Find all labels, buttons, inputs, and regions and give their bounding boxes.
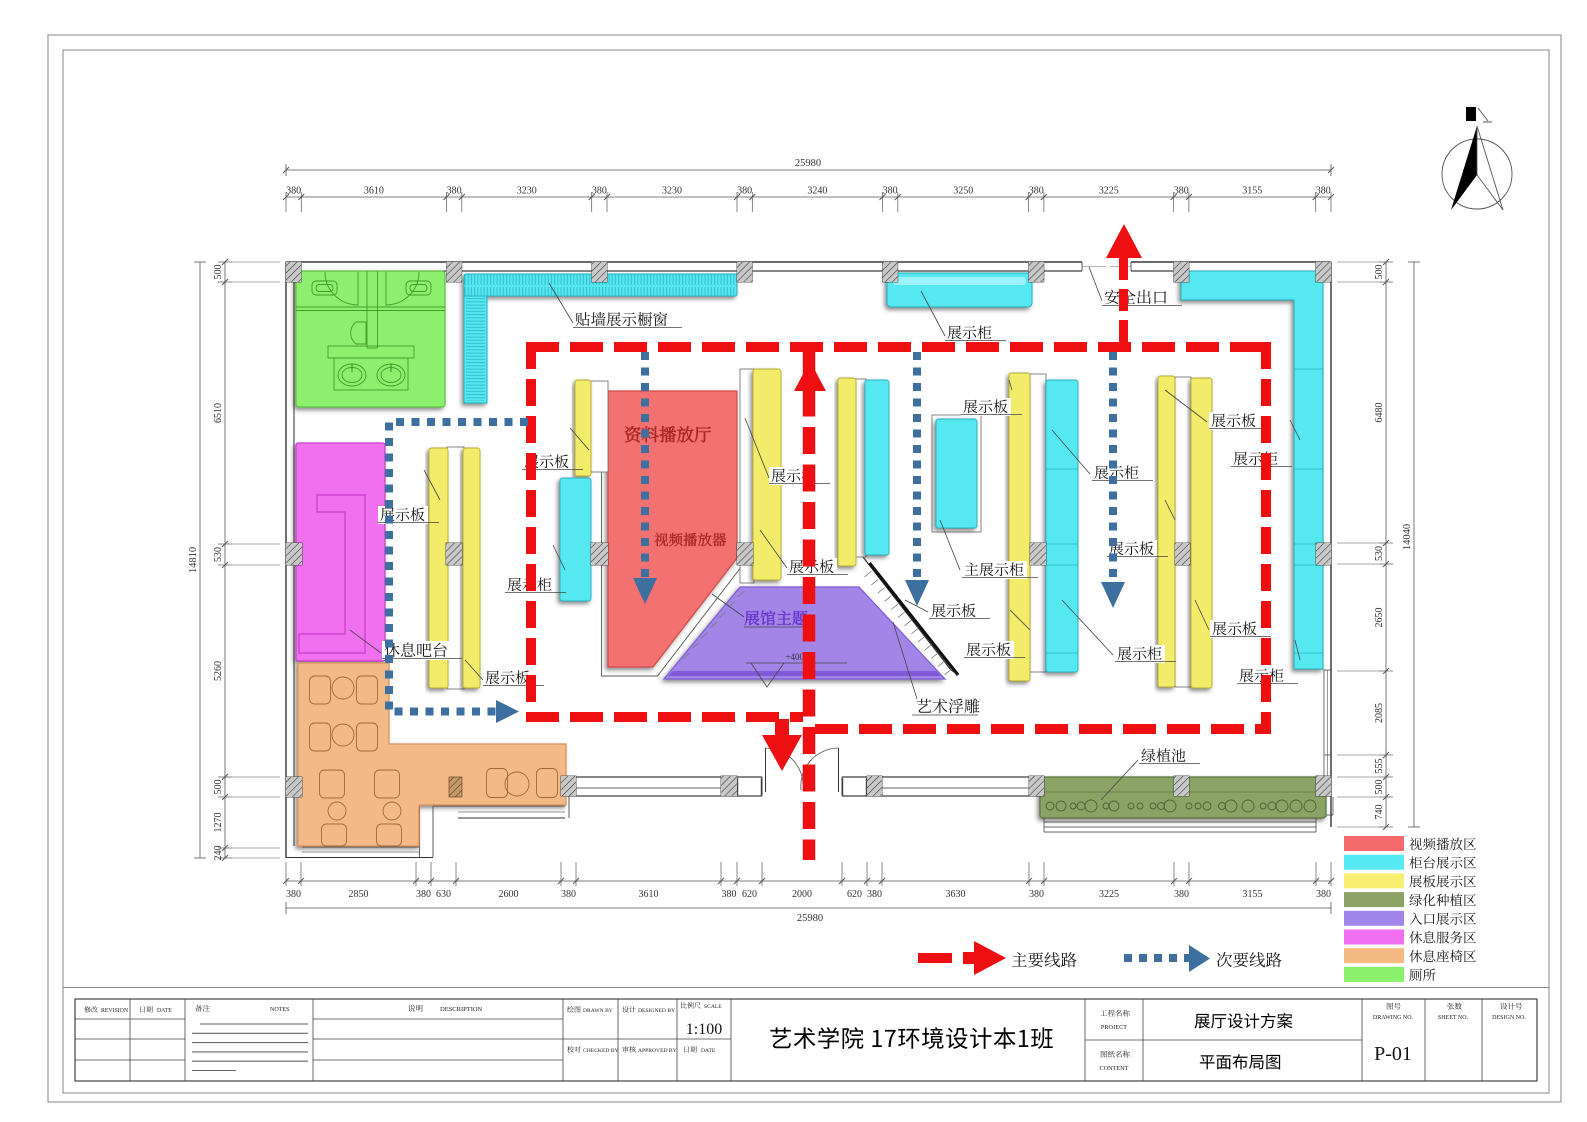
svg-text:620: 620 bbox=[847, 889, 862, 900]
svg-text:3240: 3240 bbox=[807, 186, 827, 197]
svg-text:2850: 2850 bbox=[349, 889, 369, 900]
svg-text:CHECKED BY: CHECKED BY bbox=[583, 1048, 619, 1054]
svg-text:DESIGN NO.: DESIGN NO. bbox=[1492, 1015, 1526, 1021]
svg-text:380: 380 bbox=[722, 889, 737, 900]
svg-text:630: 630 bbox=[436, 889, 451, 900]
svg-text:380: 380 bbox=[561, 889, 576, 900]
svg-text:380: 380 bbox=[1316, 889, 1331, 900]
svg-text:380: 380 bbox=[1174, 186, 1189, 197]
svg-text:6480: 6480 bbox=[1374, 403, 1385, 423]
svg-text:380: 380 bbox=[1316, 186, 1331, 197]
svg-text:500: 500 bbox=[213, 780, 224, 795]
svg-text:3155: 3155 bbox=[1243, 889, 1263, 900]
svg-text:500: 500 bbox=[1374, 265, 1385, 280]
svg-text:3610: 3610 bbox=[639, 889, 659, 900]
svg-text:380: 380 bbox=[286, 889, 301, 900]
svg-text:APPROVED BY: APPROVED BY bbox=[638, 1048, 677, 1054]
svg-text:380: 380 bbox=[1174, 889, 1189, 900]
svg-text:1270: 1270 bbox=[213, 813, 224, 833]
svg-text:500: 500 bbox=[213, 265, 224, 280]
svg-text:DATE: DATE bbox=[157, 1008, 172, 1014]
svg-text:380: 380 bbox=[867, 889, 882, 900]
svg-text:14810: 14810 bbox=[188, 547, 199, 573]
svg-text:3225: 3225 bbox=[1099, 889, 1119, 900]
svg-text:380: 380 bbox=[447, 186, 462, 197]
svg-text:3155: 3155 bbox=[1242, 186, 1262, 197]
svg-text:2600: 2600 bbox=[499, 889, 519, 900]
svg-text:530: 530 bbox=[213, 547, 224, 562]
svg-text:6510: 6510 bbox=[213, 403, 224, 423]
svg-text:380: 380 bbox=[592, 186, 607, 197]
svg-text:PROJECT: PROJECT bbox=[1101, 1024, 1127, 1031]
svg-text:240: 240 bbox=[213, 846, 224, 861]
svg-text:CONTENT: CONTENT bbox=[1100, 1065, 1129, 1072]
svg-text:25980: 25980 bbox=[797, 913, 823, 924]
svg-text:3225: 3225 bbox=[1099, 186, 1119, 197]
svg-text:REVISION: REVISION bbox=[101, 1008, 129, 1014]
svg-text:2085: 2085 bbox=[1374, 703, 1385, 723]
svg-text:500: 500 bbox=[1374, 780, 1385, 795]
svg-text:P-01: P-01 bbox=[1374, 1043, 1412, 1065]
svg-text:DRAWING NO.: DRAWING NO. bbox=[1373, 1015, 1414, 1021]
svg-text:DESCRIPTION: DESCRIPTION bbox=[440, 1006, 483, 1013]
svg-text:555: 555 bbox=[1374, 759, 1385, 774]
svg-text:740: 740 bbox=[1374, 805, 1385, 820]
svg-text:3230: 3230 bbox=[517, 186, 537, 197]
svg-text:380: 380 bbox=[883, 186, 898, 197]
svg-text:SHEET NO.: SHEET NO. bbox=[1438, 1015, 1469, 1021]
svg-text:14040: 14040 bbox=[1402, 524, 1413, 550]
svg-text:530: 530 bbox=[1374, 546, 1385, 561]
svg-text:380: 380 bbox=[737, 186, 752, 197]
svg-text:5260: 5260 bbox=[213, 661, 224, 681]
svg-text:2650: 2650 bbox=[1374, 608, 1385, 628]
svg-text:3230: 3230 bbox=[662, 186, 682, 197]
svg-text:620: 620 bbox=[742, 889, 757, 900]
svg-text:3610: 3610 bbox=[364, 186, 384, 197]
svg-text:DRAWN BY: DRAWN BY bbox=[583, 1008, 613, 1014]
svg-text:3630: 3630 bbox=[946, 889, 966, 900]
svg-text:SCALE: SCALE bbox=[704, 1004, 722, 1010]
svg-text:380: 380 bbox=[416, 889, 431, 900]
svg-text:2000: 2000 bbox=[792, 889, 812, 900]
svg-text:380: 380 bbox=[1029, 889, 1044, 900]
svg-text:1:100: 1:100 bbox=[686, 1021, 722, 1038]
svg-text:380: 380 bbox=[286, 186, 301, 197]
svg-text:3250: 3250 bbox=[953, 186, 973, 197]
svg-text:380: 380 bbox=[1029, 186, 1044, 197]
svg-text:DESIGNED BY: DESIGNED BY bbox=[638, 1008, 675, 1014]
svg-text:DATE: DATE bbox=[701, 1048, 716, 1054]
svg-text:NOTES: NOTES bbox=[270, 1007, 289, 1013]
svg-text:25980: 25980 bbox=[795, 158, 821, 169]
